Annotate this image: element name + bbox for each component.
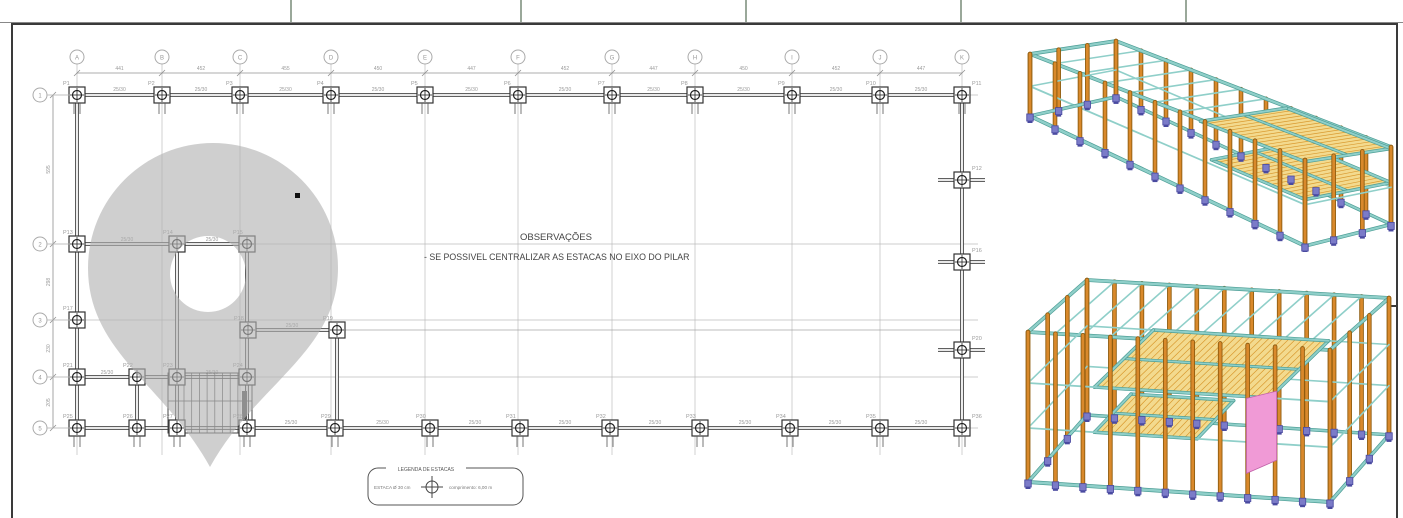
plan-label: P11 — [972, 81, 981, 87]
plan-label: H — [693, 56, 697, 62]
plan-label: 25/30 — [279, 87, 292, 93]
pile-cap-P13: P13 — [63, 230, 85, 252]
plan-label: 452 — [197, 66, 206, 72]
plan-label: 595 — [46, 165, 52, 174]
plan-label: 25/30 — [915, 420, 928, 426]
plan-label: P30 — [416, 414, 426, 420]
plan-label: 230 — [46, 344, 52, 353]
grid-bubble-row-4: 4 — [33, 370, 70, 384]
pile-cap-P34: P34 — [776, 414, 798, 447]
plan-label: 25/30 — [649, 420, 662, 426]
plan-label: P4 — [317, 81, 324, 87]
legend-title: LEGENDA DE ESTACAS — [398, 467, 455, 473]
pile-cap-P10: P10 — [866, 81, 888, 114]
pile-cap-P30: P30 — [416, 414, 438, 447]
plan-label: 25/30 — [469, 420, 482, 426]
plan-label: 447 — [917, 66, 926, 72]
grid-bubble-B: B — [155, 50, 169, 64]
grid-bubble-C: C — [233, 50, 247, 64]
foundation-plan: 4414524554504474524474504524475952982302… — [0, 0, 1010, 518]
plan-label: P7 — [598, 81, 605, 87]
plan-label: B — [160, 56, 164, 62]
plan-label: C — [238, 56, 243, 62]
grid-bubble-F: F — [511, 50, 525, 64]
pile-cap-P3: P3 — [226, 81, 248, 114]
pile-cap-P21: P21 — [63, 363, 85, 385]
legend-right-text: comprimento: 6,00 m — [449, 485, 492, 490]
pile-cap-P5: P5 — [411, 81, 433, 114]
strip-divider — [1185, 0, 1187, 22]
plan-label: P34 — [776, 414, 786, 420]
pile-legend-box: LEGENDA DE ESTACAS ESTACA Ø 30 cm compri… — [368, 464, 523, 505]
grid-bubble-D: D — [324, 50, 338, 64]
plan-label: A — [75, 56, 79, 62]
plan-label: P1 — [63, 81, 70, 87]
plan-label: P29 — [321, 414, 331, 420]
plan-label: P10 — [866, 81, 876, 87]
plan-label: P3 — [226, 81, 233, 87]
plan-label: P17 — [63, 306, 73, 312]
plan-label: 25/30 — [372, 87, 385, 93]
pile-cap-P8: P8 — [681, 81, 703, 114]
drawing-sheet: 4414524554504474524474504524475952982302… — [0, 0, 1403, 518]
pile-cap-P1: P1 — [63, 81, 85, 114]
pile-cap-P33: P33 — [686, 414, 708, 447]
plan-label: 25/30 — [829, 420, 842, 426]
plan-label: G — [610, 56, 615, 62]
grid-bubble-row-1: 1 — [33, 88, 70, 102]
pile-cap-P20: P20 — [954, 336, 982, 358]
plan-label: P32 — [596, 414, 606, 420]
plan-label: 25/30 — [830, 87, 843, 93]
pile-cap-P9: P9 — [778, 81, 800, 114]
plan-label: P21 — [63, 363, 73, 369]
plan-label: P9 — [778, 81, 785, 87]
observations-note: - SE POSSIVEL CENTRALIZAR AS ESTACAS NO … — [424, 252, 689, 262]
plan-label: J — [879, 56, 882, 62]
plan-label: 452 — [832, 66, 841, 72]
plan-label: P33 — [686, 414, 696, 420]
grid-bubble-G: G — [605, 50, 619, 64]
plan-label: 25/30 — [915, 87, 928, 93]
observations-block: OBSERVAÇÕES - SE POSSIVEL CENTRALIZAR AS… — [424, 232, 689, 262]
grid-bubble-I: I — [785, 50, 799, 64]
plan-label: 25/30 — [206, 237, 219, 243]
plan-label: P2 — [148, 81, 155, 87]
plan-label: P36 — [972, 414, 982, 420]
pile-cap-P2: P2 — [148, 81, 170, 114]
grid-bubble-row-3: 3 — [33, 313, 70, 327]
plan-label: P16 — [972, 248, 982, 254]
grid-bubble-J: J — [873, 50, 887, 64]
pile-cap-P29: P29 — [321, 414, 343, 447]
plan-label: 25/30 — [559, 420, 572, 426]
plan-label: 25/30 — [465, 87, 478, 93]
pile-cap-P12: P12 — [954, 166, 982, 188]
pile-cap-P17: P17 — [63, 306, 85, 328]
plan-label: 455 — [281, 66, 290, 72]
pile-cap-P32: P32 — [596, 414, 618, 447]
legend-left-text: ESTACA Ø 30 cm — [374, 485, 411, 490]
plan-label: E — [423, 56, 427, 62]
plan-label: F — [516, 56, 520, 62]
plan-label: 205 — [46, 398, 52, 407]
plan-label: 447 — [467, 66, 476, 72]
plan-label: 25/30 — [737, 87, 750, 93]
pile-cap-P11: P11 — [954, 81, 981, 114]
grid-bubble-row-5: 5 — [33, 421, 70, 435]
pile-cap-P16: P16 — [954, 248, 982, 270]
plan-label: 25/30 — [647, 87, 660, 93]
plan-label: 25/30 — [285, 420, 298, 426]
plan-label: 25/30 — [739, 420, 752, 426]
marker-dot — [295, 193, 300, 198]
grid-bubble-E: E — [418, 50, 432, 64]
plan-label: P27 — [163, 414, 173, 420]
pile-cap-P19: P19 — [323, 316, 345, 338]
plan-label: P12 — [972, 166, 982, 172]
grid-bubble-row-2: 2 — [33, 237, 70, 251]
pile-cap-P31: P31 — [506, 414, 528, 447]
plan-label: 452 — [561, 66, 570, 72]
plan-label: 25/30 — [113, 87, 126, 93]
plan-label: P13 — [63, 230, 73, 236]
plan-label: 25/30 — [101, 370, 114, 376]
plan-label: P5 — [411, 81, 418, 87]
pile-cap-P7: P7 — [598, 81, 620, 114]
plan-label: P8 — [681, 81, 688, 87]
3d-model-bottom — [1012, 272, 1400, 516]
plan-label: 298 — [46, 278, 52, 287]
stair-3d — [1246, 391, 1276, 473]
plan-label: 25/30 — [559, 87, 572, 93]
plan-label: 441 — [115, 66, 124, 72]
pile-cap-P26: P26 — [123, 414, 145, 447]
pile-cap-P25: P25 — [63, 414, 85, 447]
plan-label: P26 — [123, 414, 133, 420]
plan-label: P6 — [504, 81, 511, 87]
3d-model-top — [1012, 36, 1400, 252]
pile-cap-P4: P4 — [317, 81, 339, 114]
pile-cap-P6: P6 — [504, 81, 526, 114]
grid-bubble-A: A — [70, 50, 84, 64]
plan-label: 450 — [739, 66, 748, 72]
pile-cap-P36: P36 — [954, 414, 982, 447]
plan-label: 25/30 — [195, 87, 208, 93]
plan-label: P20 — [972, 336, 982, 342]
plan-label: 25/30 — [376, 420, 389, 426]
observations-heading: OBSERVAÇÕES — [520, 232, 592, 243]
plan-label: 450 — [374, 66, 383, 72]
grid-bubble-K: K — [955, 50, 969, 64]
plan-label: D — [329, 56, 334, 62]
grid-bubble-H: H — [688, 50, 702, 64]
plan-label: P35 — [866, 414, 876, 420]
pile-cap-P35: P35 — [866, 414, 888, 447]
plan-label: 447 — [649, 66, 658, 72]
plan-label: P31 — [506, 414, 516, 420]
plan-label: K — [960, 56, 964, 62]
plan-label: P25 — [63, 414, 73, 420]
